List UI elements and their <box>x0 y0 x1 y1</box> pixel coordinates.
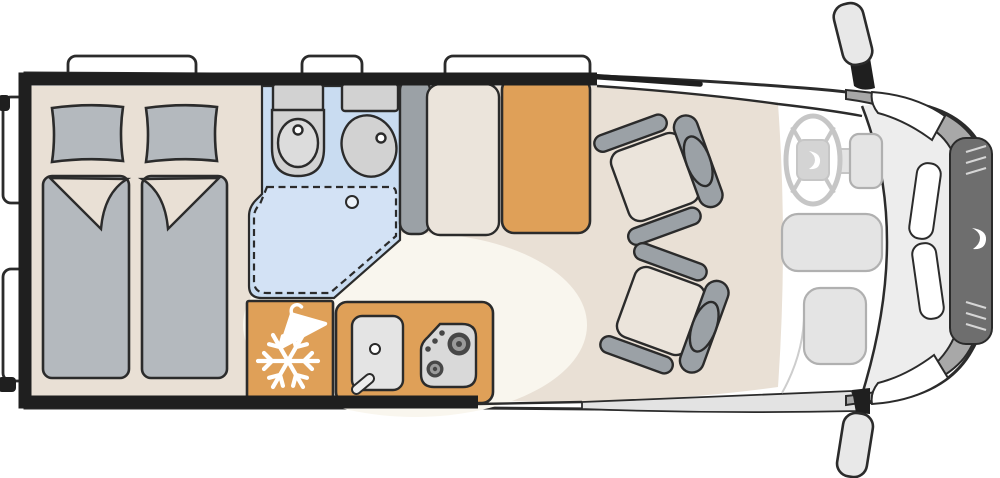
wheel-hub <box>797 140 829 180</box>
toilet-tank <box>273 84 323 111</box>
dashboard-console-lower <box>782 214 882 271</box>
rear-bumper-stub-bottom <box>0 377 16 392</box>
mirror-top <box>831 0 875 89</box>
toilet <box>272 84 324 176</box>
floorplan-canvas <box>0 0 1000 478</box>
mirror-glass <box>835 411 875 478</box>
burner-icon-small <box>427 361 444 378</box>
cab-front <box>782 90 992 405</box>
motorhome-floorplan <box>0 0 1000 478</box>
sink-drain-icon <box>370 344 380 354</box>
drain-icon <box>346 196 358 208</box>
kitchen <box>247 297 493 403</box>
engine-cover <box>804 288 866 364</box>
dashboard-console-upper <box>850 134 882 188</box>
pillow-right <box>146 105 217 162</box>
bench-cushion <box>427 84 499 235</box>
toilet-flush-dot <box>294 126 303 135</box>
pillow-left <box>52 105 123 162</box>
rear-bumper-stub-top <box>0 95 10 111</box>
dinette-table <box>502 78 590 233</box>
mirror-glass <box>831 0 875 67</box>
dinette <box>400 78 590 235</box>
steering-wheel-icon <box>786 116 840 204</box>
bench-backrest <box>400 79 430 234</box>
burner-icon-large <box>448 333 471 356</box>
washbasin-vanity <box>342 84 398 111</box>
washbasin-drain-dot <box>377 134 386 143</box>
